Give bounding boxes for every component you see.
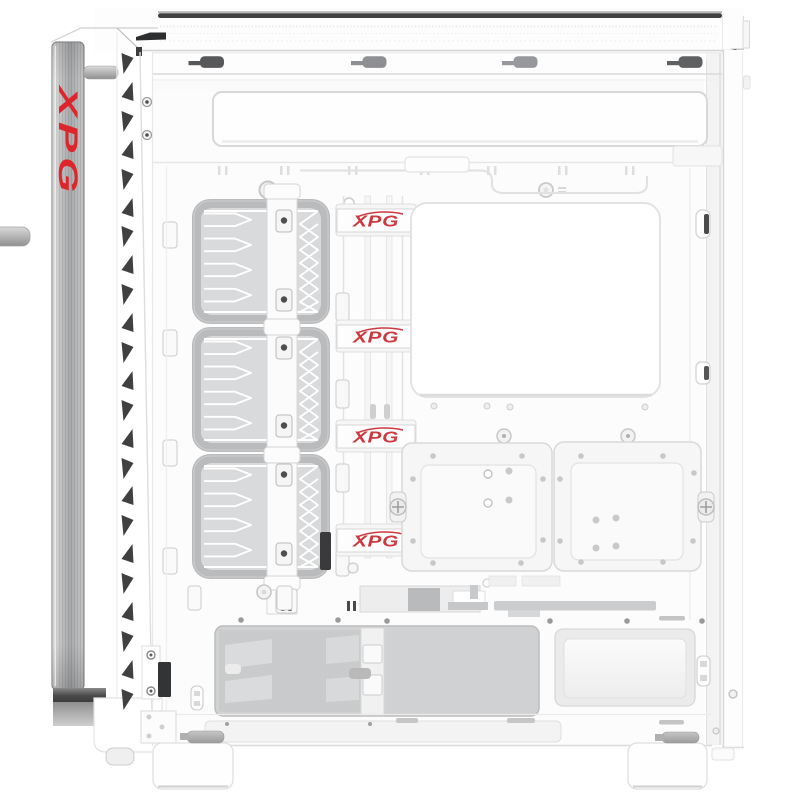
svg-text:XPG: XPG — [352, 534, 399, 551]
svg-text:XPG: XPG — [352, 430, 399, 447]
svg-text:XPG: XPG — [53, 83, 83, 197]
svg-text:XPG: XPG — [352, 214, 399, 231]
svg-text:XPG: XPG — [352, 330, 399, 347]
